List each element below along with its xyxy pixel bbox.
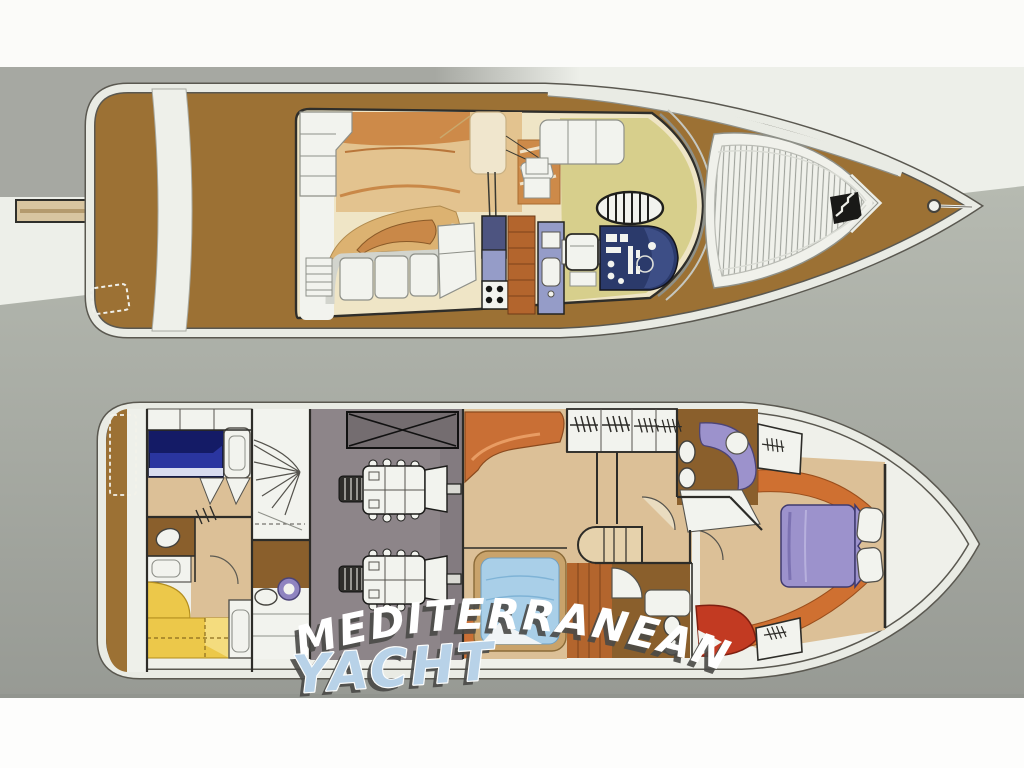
bow-pillow (856, 547, 883, 583)
sunpad-pillow (470, 112, 506, 174)
vip-sink (726, 432, 748, 454)
flybridge-galley (482, 216, 564, 314)
floor-edge-line (0, 694, 1024, 698)
transom-strip (127, 409, 147, 672)
helm-console (600, 226, 678, 290)
cockpit-steps (306, 258, 332, 296)
deck-plans-canvas: MEDITERRANEAN MEDITERRANEAN YACHT YACHT (0, 0, 1024, 768)
photo-white-band-bottom (0, 698, 1024, 768)
bow-pillow (856, 507, 883, 543)
day-head-toilet (255, 589, 277, 605)
helm-sunbed (597, 190, 663, 226)
bar-sink (542, 258, 560, 286)
aft-cabin-cabinets (147, 409, 252, 430)
galley-wood-sole (508, 216, 535, 314)
bow-berth (781, 505, 855, 587)
flybridge-cockpit (296, 109, 703, 320)
lower-staircase (252, 409, 310, 540)
yacht-deck-plans-photo: MEDITERRANEAN MEDITERRANEAN YACHT YACHT (0, 0, 1024, 768)
aft-deck-walkway (152, 89, 192, 331)
helm-bench-seat (540, 120, 624, 164)
galley-stove (482, 281, 508, 309)
flybridge-sunpad (336, 112, 522, 212)
cabin-steps (578, 527, 642, 563)
vip-toilet (679, 441, 695, 463)
photo-white-band-top (0, 0, 1024, 67)
